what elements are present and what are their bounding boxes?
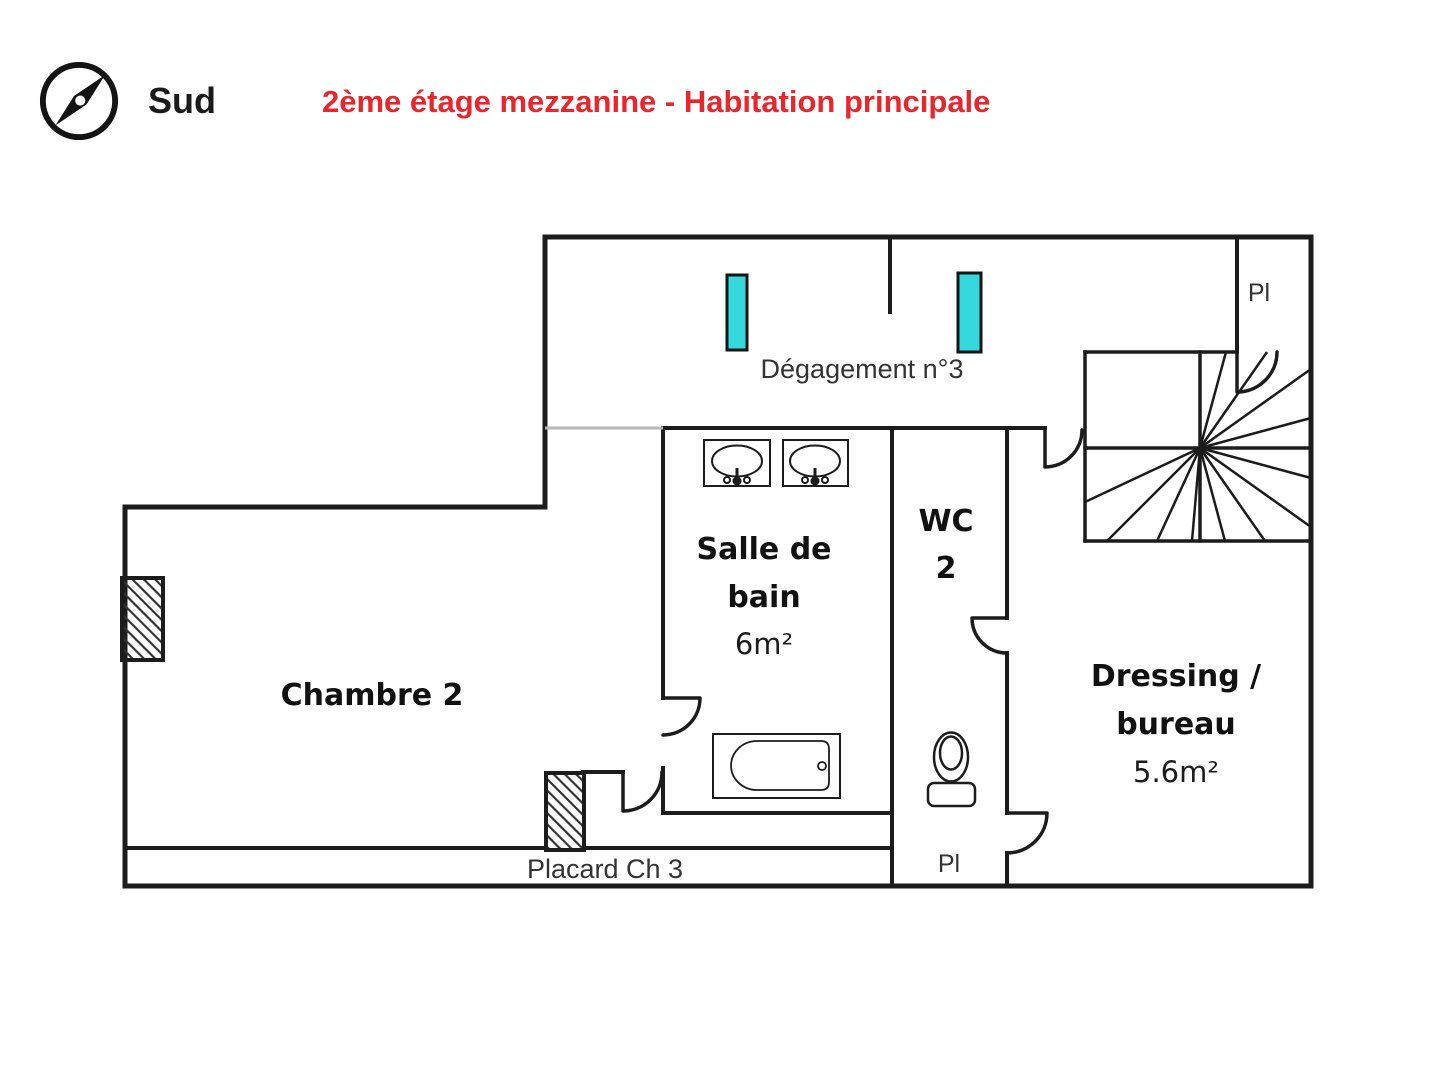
room-label-chambre: Chambre 2 — [281, 678, 464, 713]
sink-left — [704, 440, 770, 486]
room-area-salle-de-bain: 6m² — [735, 627, 793, 661]
room-area-dressing: 5.6m² — [1133, 755, 1219, 789]
room-label-wc-2: 2 — [936, 551, 957, 586]
ducts — [122, 578, 584, 850]
room-label-salle-de-bain-1: Salle de — [696, 532, 831, 567]
door-pl-bottom — [1007, 813, 1047, 853]
door-landing — [1045, 430, 1082, 467]
door-bathroom — [663, 698, 700, 735]
toilet — [928, 733, 975, 807]
door-chambre-passage — [623, 772, 662, 811]
fixtures — [704, 440, 975, 806]
door-wc — [972, 618, 1007, 653]
inner-walls — [125, 237, 1237, 886]
skylight-left — [727, 275, 747, 350]
stairwell-box — [1085, 352, 1311, 541]
room-label-placard: Placard Ch 3 — [527, 854, 683, 884]
room-label-pl-bottom: Pl — [938, 850, 960, 878]
room-label-degagement: Dégagement n°3 — [761, 354, 964, 384]
duct-hatch-bottom — [546, 773, 584, 850]
floor-plan: Dégagement n°3 Pl Salle de bain 6m² WC 2… — [0, 0, 1440, 1080]
skylights — [727, 273, 981, 352]
room-label-dressing-1: Dressing / — [1091, 659, 1261, 694]
room-label-pl-top: Pl — [1248, 279, 1270, 307]
bathtub — [713, 734, 840, 798]
labels: Dégagement n°3 Pl Salle de bain 6m² WC 2… — [281, 279, 1271, 884]
room-label-dressing-2: bureau — [1116, 707, 1236, 742]
duct-hatch-left — [122, 578, 163, 660]
room-label-salle-de-bain-2: bain — [727, 580, 800, 615]
room-label-wc-1: WC — [918, 504, 973, 539]
sink-right — [783, 440, 848, 486]
skylight-right — [958, 273, 981, 352]
stairs — [1085, 352, 1311, 541]
